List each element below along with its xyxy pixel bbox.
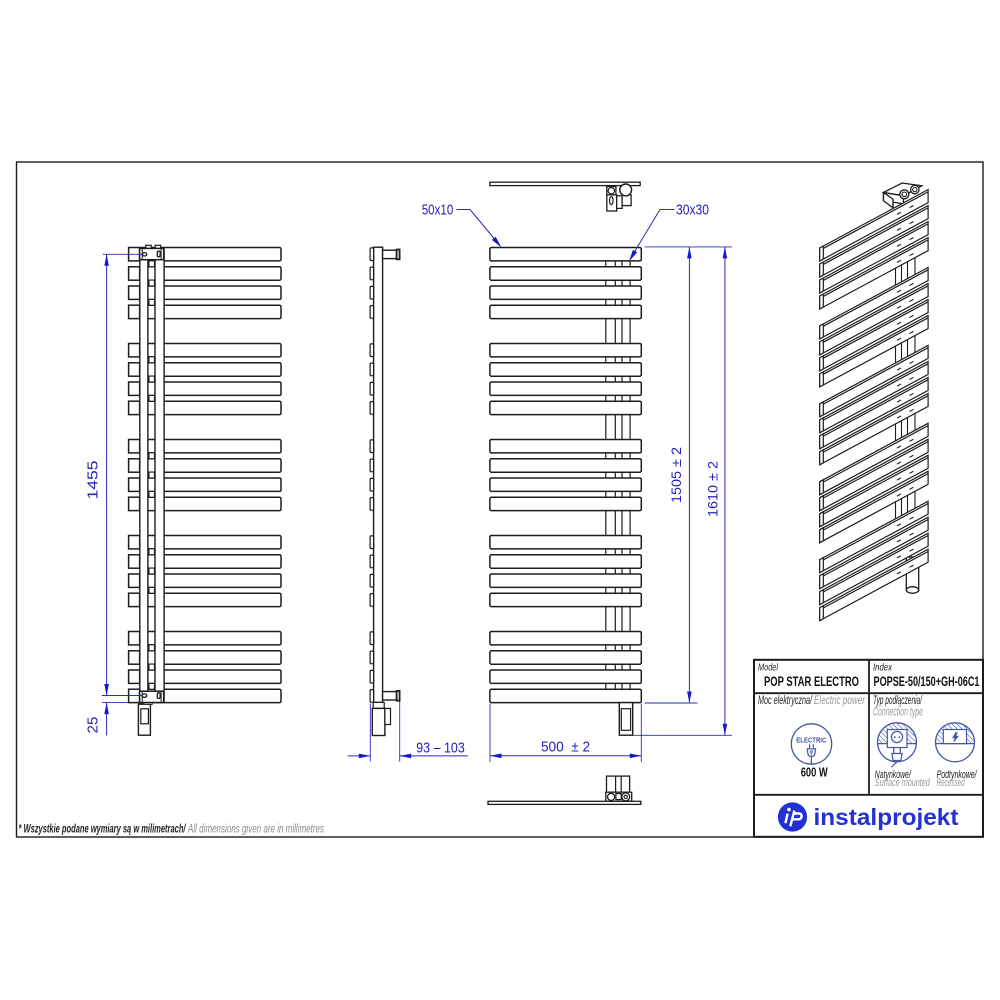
svg-text:1505 ± 2: 1505 ± 2 — [668, 447, 684, 503]
svg-text:POP STAR ELECTRO: POP STAR ELECTRO — [764, 674, 859, 689]
svg-text:Index: Index — [873, 662, 893, 674]
svg-text:Moc elektryczna/: Moc elektryczna/ — [758, 695, 813, 707]
svg-text:1455: 1455 — [85, 461, 102, 500]
svg-text:93 – 103: 93 – 103 — [416, 740, 465, 757]
svg-text:instalprojekt: instalprojekt — [814, 804, 959, 830]
svg-text:600 W: 600 W — [801, 766, 828, 780]
svg-text:ELECTRIC: ELECTRIC — [796, 738, 826, 745]
svg-text:POPSE-50/150+GH-06C1: POPSE-50/150+GH-06C1 — [874, 674, 980, 689]
svg-text:* Wszystkie podane wymiary są: * Wszystkie podane wymiary są w milimetr… — [19, 824, 187, 836]
svg-text:Model: Model — [758, 662, 778, 674]
svg-text:500 ± 2: 500 ± 2 — [541, 739, 590, 756]
svg-text:30x30: 30x30 — [676, 202, 709, 219]
svg-text:Surface mounted: Surface mounted — [875, 777, 931, 789]
svg-text:Connection type: Connection type — [873, 707, 923, 719]
svg-text:Electric power: Electric power — [814, 695, 866, 707]
svg-text:Typ podłączenia/: Typ podłączenia/ — [873, 695, 923, 707]
svg-text:25: 25 — [85, 717, 102, 734]
svg-text:All dimensions given are in mi: All dimensions given are in millimetres — [187, 824, 324, 836]
svg-text:1610 ± 2: 1610 ± 2 — [704, 461, 720, 517]
svg-text:Recessed: Recessed — [937, 777, 966, 789]
svg-text:50x10: 50x10 — [422, 202, 454, 219]
